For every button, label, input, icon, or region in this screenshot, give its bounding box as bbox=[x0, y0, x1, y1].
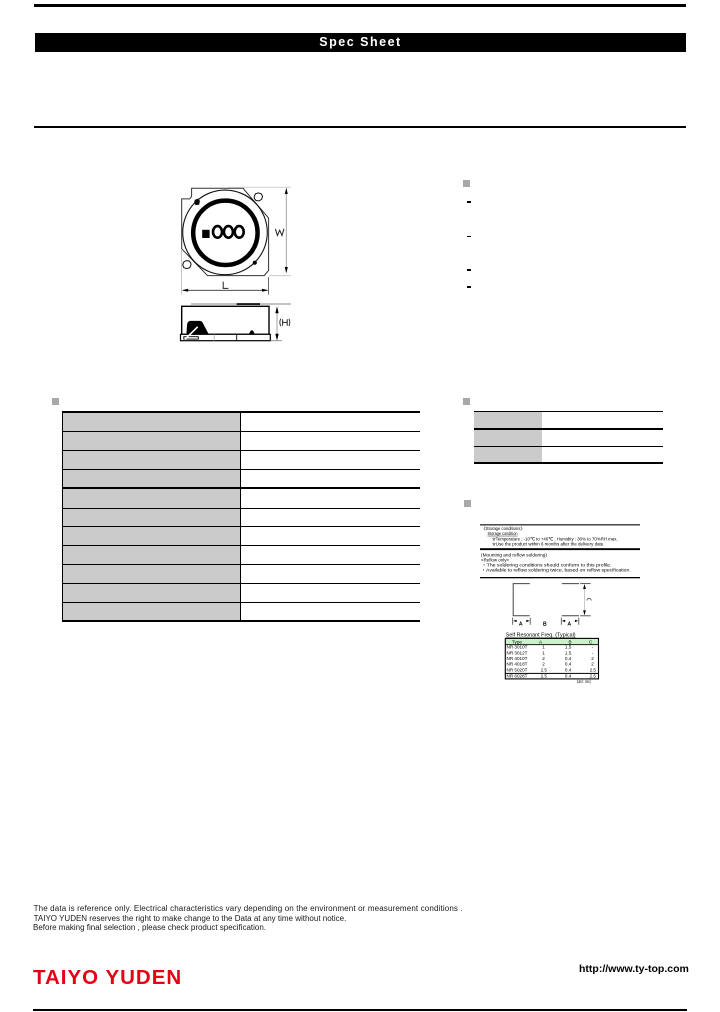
svg-text:2: 2 bbox=[542, 656, 545, 661]
svg-text:NR 3010T: NR 3010T bbox=[507, 645, 528, 650]
svg-text:2.5: 2.5 bbox=[590, 668, 597, 673]
svg-text:NR 6028T: NR 6028T bbox=[507, 673, 528, 678]
svg-text:2: 2 bbox=[591, 656, 594, 661]
svg-text:2: 2 bbox=[591, 662, 594, 667]
svg-text:※Use the product within 6 mont: ※Use the product within 6 months after t… bbox=[492, 542, 605, 547]
svg-text:1.5: 1.5 bbox=[565, 645, 572, 650]
svg-text:2.5: 2.5 bbox=[541, 673, 548, 678]
svg-text:0.4: 0.4 bbox=[565, 668, 572, 673]
svg-text:1: 1 bbox=[542, 645, 545, 650]
svg-text:1: 1 bbox=[542, 650, 545, 655]
svg-text:-: - bbox=[592, 645, 594, 650]
svg-text:Storage condition: Storage condition bbox=[488, 531, 519, 536]
svg-text:2.5: 2.5 bbox=[541, 668, 548, 673]
svg-text:<Reflow only>: <Reflow only> bbox=[481, 557, 509, 562]
svg-text:(Unit : mm): (Unit : mm) bbox=[577, 679, 591, 684]
svg-text:Self Resonant Freq. (Typical): Self Resonant Freq. (Typical) bbox=[506, 633, 576, 639]
svg-text:2.5: 2.5 bbox=[590, 673, 597, 678]
svg-text:2: 2 bbox=[542, 662, 545, 667]
svg-text:NR 3012T: NR 3012T bbox=[507, 650, 528, 655]
svg-text:NR 5020T: NR 5020T bbox=[507, 668, 528, 673]
svg-text:NR 4010T: NR 4010T bbox=[507, 656, 528, 661]
svg-text:・Available to reflow soldering: ・Available to reflow soldering twice, ba… bbox=[481, 568, 631, 573]
svg-text:-: - bbox=[592, 650, 594, 655]
svg-text:0.4: 0.4 bbox=[565, 673, 572, 678]
svg-text:NR 4018T: NR 4018T bbox=[507, 662, 528, 667]
svg-text:0.4: 0.4 bbox=[565, 656, 572, 661]
svg-text:1.5: 1.5 bbox=[565, 650, 572, 655]
svg-text:0.4: 0.4 bbox=[565, 662, 572, 667]
